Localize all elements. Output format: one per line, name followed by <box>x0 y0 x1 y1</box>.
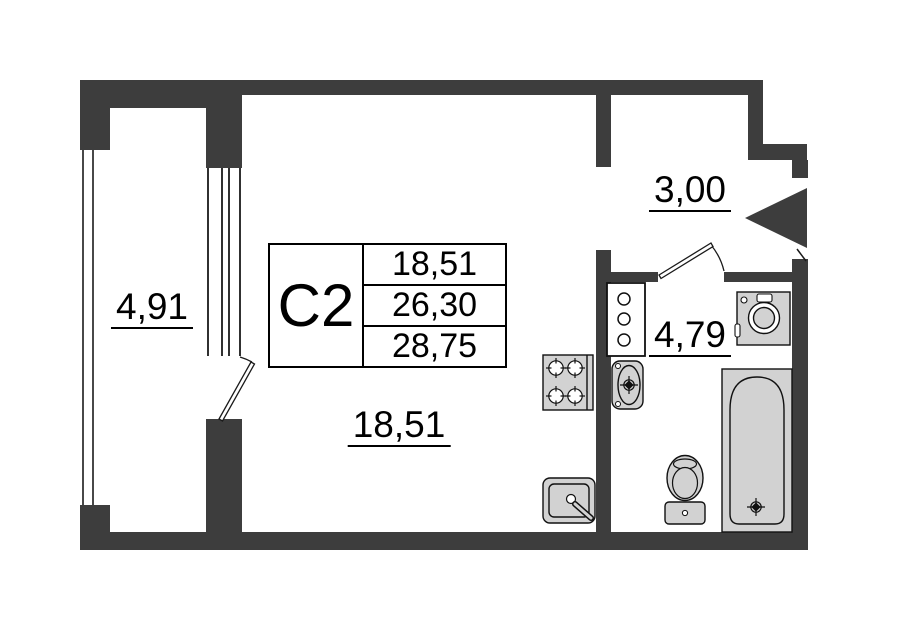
bathroom-door <box>659 243 724 279</box>
cabinet-icon <box>607 283 645 356</box>
total-area-with-balcony-value: 28,75 <box>364 325 505 366</box>
room-label-balcony: 4,91 <box>111 288 193 329</box>
living-room-area-value: 18,51 <box>348 406 451 447</box>
stove-icon <box>543 355 593 410</box>
wall-balcony-door-pillar <box>206 419 242 532</box>
room-label-living-room: 18,51 <box>348 406 451 447</box>
living-area-value: 18,51 <box>364 245 505 284</box>
wall-balcony-bottom-pillar <box>80 505 110 532</box>
wall-bath-top-left <box>611 272 658 282</box>
wall-right-upper <box>792 160 808 178</box>
room-label-bathroom: 4,79 <box>649 316 731 357</box>
balcony-door-swing-arc <box>240 357 252 362</box>
bathtub-icon <box>722 369 792 532</box>
unit-info-table: С2 18,51 26,30 28,75 <box>268 243 507 368</box>
balcony-door <box>219 357 255 421</box>
bathroom-door-leaf <box>659 243 713 279</box>
kitchen-sink-icon <box>543 478 595 523</box>
wall-hall-step-ledge <box>748 144 807 160</box>
bathroom-door-swing-arc <box>711 245 724 271</box>
wall-top <box>242 80 763 95</box>
total-area-value: 26,30 <box>364 284 505 325</box>
wall-balcony-left-pillar <box>80 80 110 150</box>
washing-machine-icon <box>735 292 790 345</box>
wall-right-lower <box>792 259 808 550</box>
wall-bath-top-right <box>724 272 792 282</box>
floor-plan: 4,91 3,00 4,79 18,51 С2 18,51 26,30 28,7… <box>0 0 900 627</box>
wall-balcony-window-pillar <box>206 80 242 168</box>
hallway-area-value: 3,00 <box>649 171 731 212</box>
wall-partition-room-hall <box>596 95 611 167</box>
entrance-door <box>745 188 807 261</box>
balcony-glazing-lines <box>83 150 93 505</box>
toilet-icon <box>665 456 705 525</box>
washbasin-icon <box>612 361 643 409</box>
entrance-arrow-icon <box>745 188 807 248</box>
unit-area-rows: 18,51 26,30 28,75 <box>364 245 505 366</box>
wall-bottom <box>80 532 808 550</box>
balcony-window-lines <box>208 168 240 356</box>
bathroom-area-value: 4,79 <box>649 316 731 357</box>
unit-code: С2 <box>270 245 364 366</box>
balcony-area-value: 4,91 <box>111 288 193 329</box>
room-label-hallway: 3,00 <box>649 171 731 212</box>
balcony-door-leaf <box>219 362 255 421</box>
